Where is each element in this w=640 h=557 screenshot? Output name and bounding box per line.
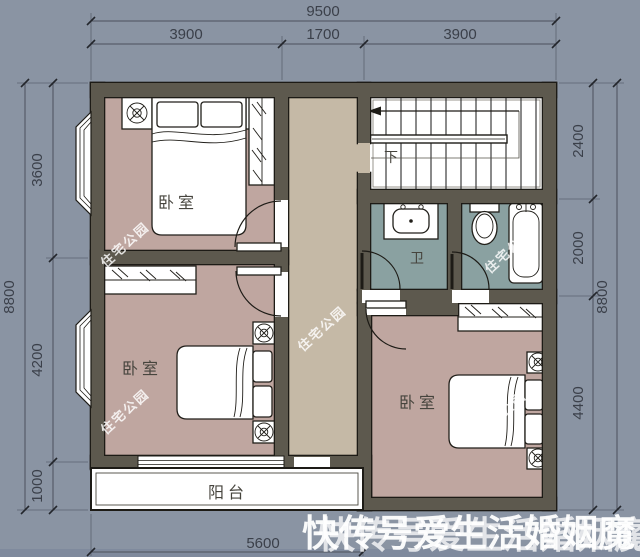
dim-right-seg-3: 4400 xyxy=(570,386,587,419)
pillow xyxy=(157,102,198,127)
bedroom-bottom-left-label: 卧室 xyxy=(122,360,162,378)
dim-left-seg-1: 3600 xyxy=(29,153,46,186)
hall-floor xyxy=(280,90,365,463)
watermark-bottom: 快传号爱生活婚姻魔 xyxy=(302,513,635,554)
dim-right-seg-1: 2400 xyxy=(570,124,587,157)
dim-right-seg-2: 2000 xyxy=(570,231,587,264)
stairs-down-label: 下 xyxy=(384,149,398,165)
dim-top-seg-3: 3900 xyxy=(443,26,476,43)
pillow xyxy=(525,380,543,410)
bedroom-top-left-label: 卧室 xyxy=(158,194,198,212)
pillow xyxy=(253,386,272,417)
floor-plan-image: 9500 3900 1700 3900 8800 3600 4200 1000 … xyxy=(0,0,640,557)
bedroom-bottom-right-furniture xyxy=(449,303,549,469)
dim-top-total: 9500 xyxy=(306,3,339,20)
dim-left-seg-3: 1000 xyxy=(29,469,46,502)
dim-left-seg-2: 4200 xyxy=(29,343,46,376)
stair-landing-opening xyxy=(358,143,370,173)
bay-window-icon xyxy=(76,310,91,407)
dim-left-total: 8800 xyxy=(1,280,18,313)
pillow xyxy=(253,351,272,382)
bedroom-bottom-right-label: 卧室 xyxy=(399,394,439,412)
pillow xyxy=(525,414,543,444)
dim-top-seg-1: 3900 xyxy=(169,26,202,43)
dim-bottom-width: 5600 xyxy=(246,535,279,552)
bay-window-icon xyxy=(76,112,91,215)
balcony-label: 阳台 xyxy=(208,484,248,502)
dim-top-seg-2: 1700 xyxy=(306,26,339,43)
pillow xyxy=(201,102,242,127)
wardrobe-icon xyxy=(249,97,276,185)
dim-right-total: 8800 xyxy=(594,280,611,313)
bathroom-label: 卫 xyxy=(410,250,424,266)
